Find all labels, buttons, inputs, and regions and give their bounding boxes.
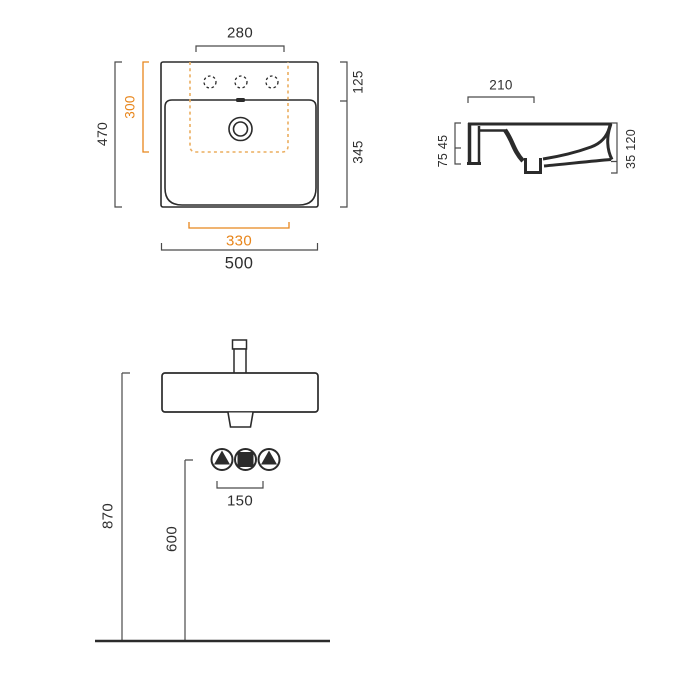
dim-label-600: 600	[164, 526, 181, 552]
side-bowl-back-curve	[505, 130, 523, 161]
dim-label-330: 330	[226, 233, 252, 250]
dim-label-150: 150	[227, 493, 253, 510]
front-installation-view	[95, 340, 330, 641]
side-bowl-bottom-outer	[544, 160, 611, 167]
dim-label-35-120: 35 120	[624, 129, 638, 169]
dim-line-600	[185, 460, 193, 641]
side-front-face	[608, 124, 612, 160]
side-drain-outlet	[524, 158, 542, 174]
side-section-view	[455, 97, 617, 174]
side-bowl-bottom-inner	[543, 125, 610, 159]
dim-line-210	[468, 97, 534, 103]
faucet-spout	[233, 340, 247, 349]
dim-line-280	[196, 46, 284, 52]
dim-label-300: 300	[123, 95, 138, 118]
basin-front	[162, 373, 318, 412]
waste-outlet-icon	[235, 449, 256, 470]
dim-line-470	[115, 62, 122, 207]
supply-valve-right-icon	[259, 449, 280, 470]
dim-label-75-45: 75 45	[436, 135, 450, 168]
waste-trap	[228, 413, 253, 428]
dim-label-500: 500	[225, 255, 253, 274]
supply-valve-left-icon	[212, 449, 233, 470]
dim-line-35-120	[611, 123, 617, 173]
dim-label-345: 345	[351, 140, 366, 163]
dim-line-125-345	[340, 62, 347, 207]
top-view	[115, 46, 347, 250]
overflow-slot	[236, 98, 245, 102]
dim-label-470: 470	[94, 122, 110, 146]
dim-line-150	[217, 481, 263, 488]
drawing-linework	[0, 0, 700, 700]
dim-line-330	[189, 222, 289, 228]
dim-label-870: 870	[100, 503, 117, 529]
dim-line-300	[143, 62, 149, 152]
dim-line-75-45	[455, 123, 461, 164]
dim-line-870	[122, 373, 130, 641]
dim-label-125: 125	[351, 70, 366, 93]
technical-drawing-canvas: 280 470 300 125 345 330 500 210 75 45 35…	[0, 0, 700, 700]
dim-label-210: 210	[489, 78, 512, 93]
faucet-body	[234, 349, 246, 374]
dim-label-280: 280	[227, 25, 253, 42]
